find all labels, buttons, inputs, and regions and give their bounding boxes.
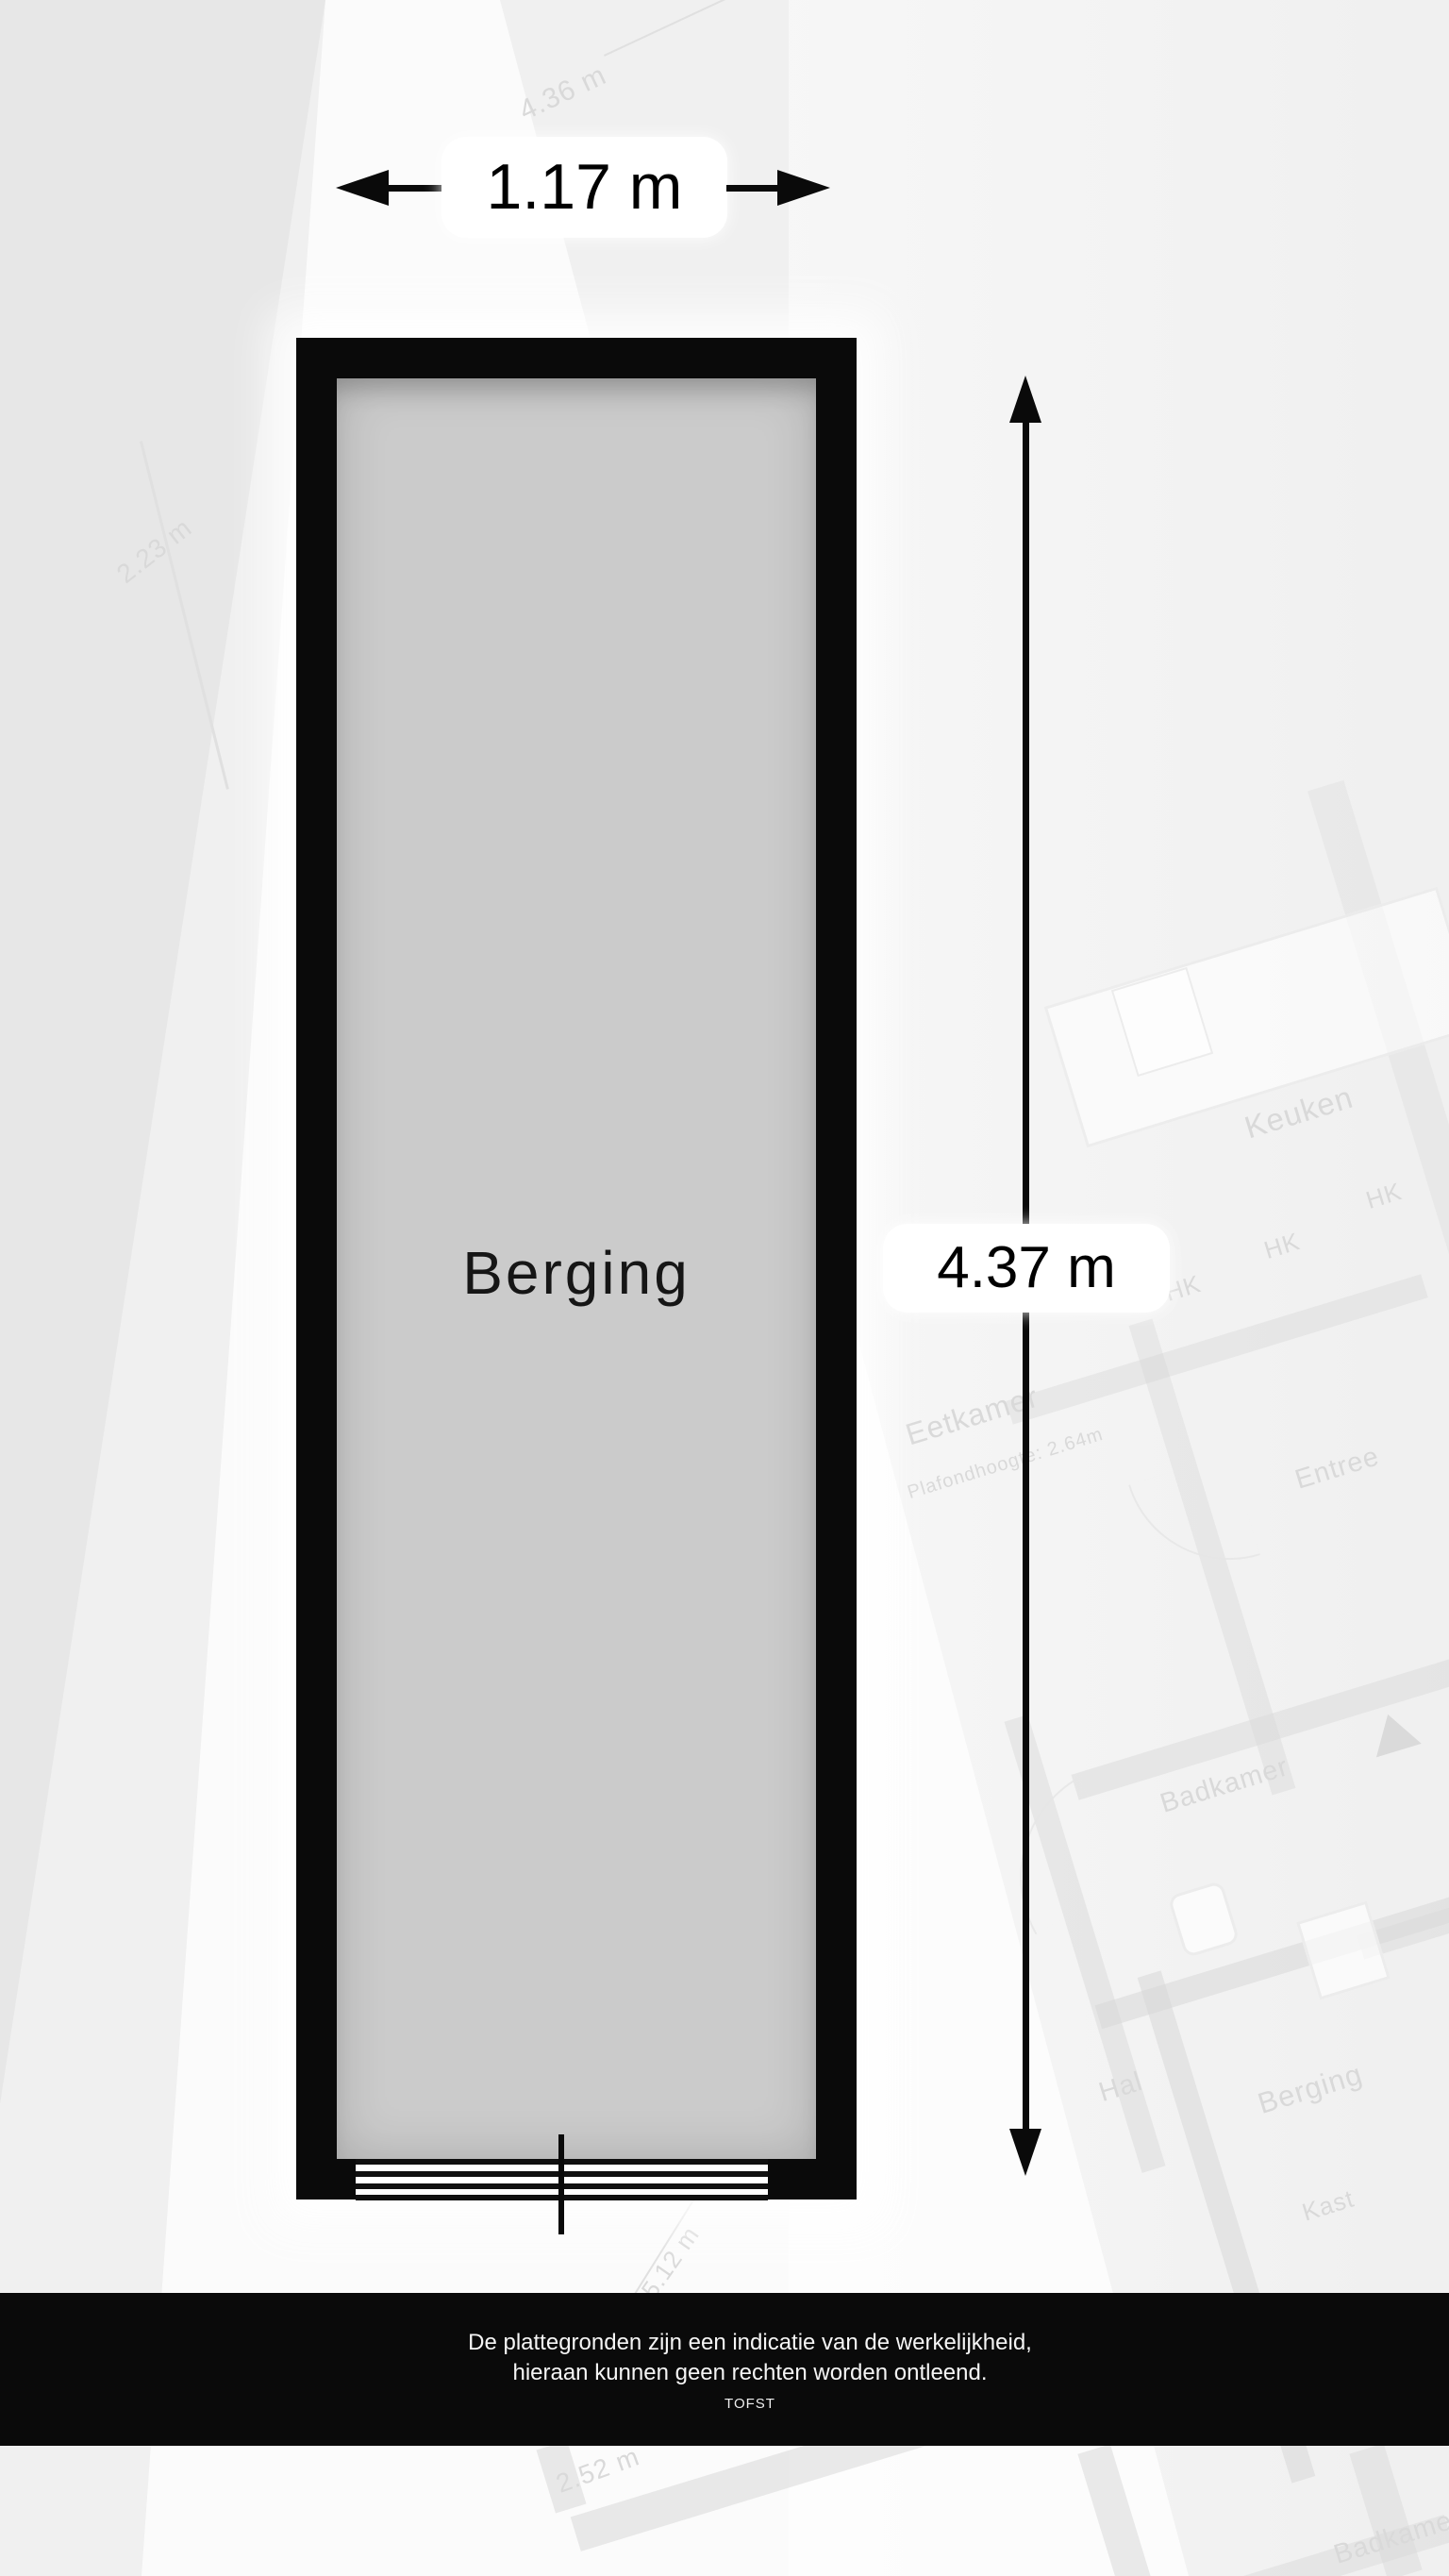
disclaimer-line-2: hieraan kunnen geen rechten worden ontle…: [512, 2358, 987, 2388]
disclaimer-line-1: De plattegronden zijn een indicatie van …: [468, 2328, 1032, 2358]
faded-dimension-label: 4.36 m: [514, 59, 611, 127]
door-center-line: [558, 2134, 564, 2234]
arrow-down-icon: [1009, 2129, 1041, 2176]
footer-bar: De plattegronden zijn een indicatie van …: [0, 2293, 1449, 2446]
arrow-left-icon: [336, 170, 389, 206]
arrow-right-icon: [777, 170, 830, 206]
footer-brand: TOFST: [724, 2396, 775, 2412]
width-dimension-line-left: [387, 185, 443, 192]
width-dimension-label: 1.17 m: [441, 137, 727, 238]
height-dimension-label: 4.37 m: [883, 1224, 1170, 1313]
floorplan-page: 4.36 m 2.23 m Keuken HK HK HK Eetkamer P…: [0, 0, 1449, 2576]
footer-disclaimer: De plattegronden zijn een indicatie van …: [52, 2293, 1448, 2446]
room-name-label: Berging: [337, 1238, 816, 1308]
width-dimension-line-right: [726, 185, 779, 192]
